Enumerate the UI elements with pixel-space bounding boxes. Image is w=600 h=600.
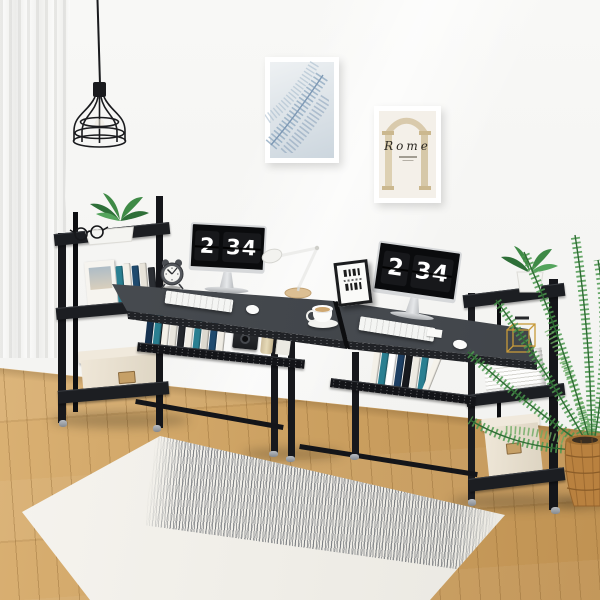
right-flip-hour: 2	[380, 250, 410, 286]
left-tower-postcard-book	[84, 260, 118, 307]
mini-print-marks-row2	[341, 282, 366, 292]
left-flip-clock: · 2 34	[191, 224, 265, 270]
mini-art-print	[333, 259, 372, 307]
shadow-left-tower	[50, 412, 190, 428]
desk-foot-3	[350, 454, 359, 460]
right-monitor-stand	[405, 297, 421, 315]
left-tower-foot-2	[153, 425, 161, 432]
left-monitor-stand	[220, 272, 235, 289]
right-flip-clock: · 2 34	[374, 243, 460, 300]
desk-foot	[269, 451, 278, 457]
cup-latte	[315, 307, 330, 312]
right-tower-foot-2	[551, 507, 560, 514]
right-monitor-screen: · 2 34	[372, 240, 462, 303]
rome-print-frame: Rome	[374, 106, 441, 203]
left-monitor-screen: · 2 34	[189, 222, 267, 274]
rome-subtitle-line2	[402, 160, 413, 162]
leaf-print-frame	[265, 57, 339, 163]
left-tower-foot	[59, 420, 67, 427]
mini-print-marks-row	[339, 268, 364, 278]
right-flip-minute: 34	[410, 254, 454, 292]
right-desk-left-leg	[352, 352, 359, 458]
leaf-print-art	[270, 62, 334, 158]
left-flip-minute: 34	[222, 232, 261, 264]
coffee-cup	[308, 300, 338, 330]
rome-print-art: Rome	[379, 111, 436, 198]
right-tower-foot	[468, 499, 476, 506]
rome-title: Rome	[379, 139, 436, 153]
desk-foot-2	[286, 456, 295, 462]
left-flip-hour: 2	[194, 230, 220, 261]
room-scene: Rome	[0, 0, 600, 600]
left-monitor: · 2 34	[187, 222, 269, 302]
right-tower-storage-box	[483, 413, 543, 477]
box-label-plate	[118, 371, 136, 384]
rome-subtitle-line	[399, 156, 417, 158]
box-label-plate	[506, 442, 522, 455]
